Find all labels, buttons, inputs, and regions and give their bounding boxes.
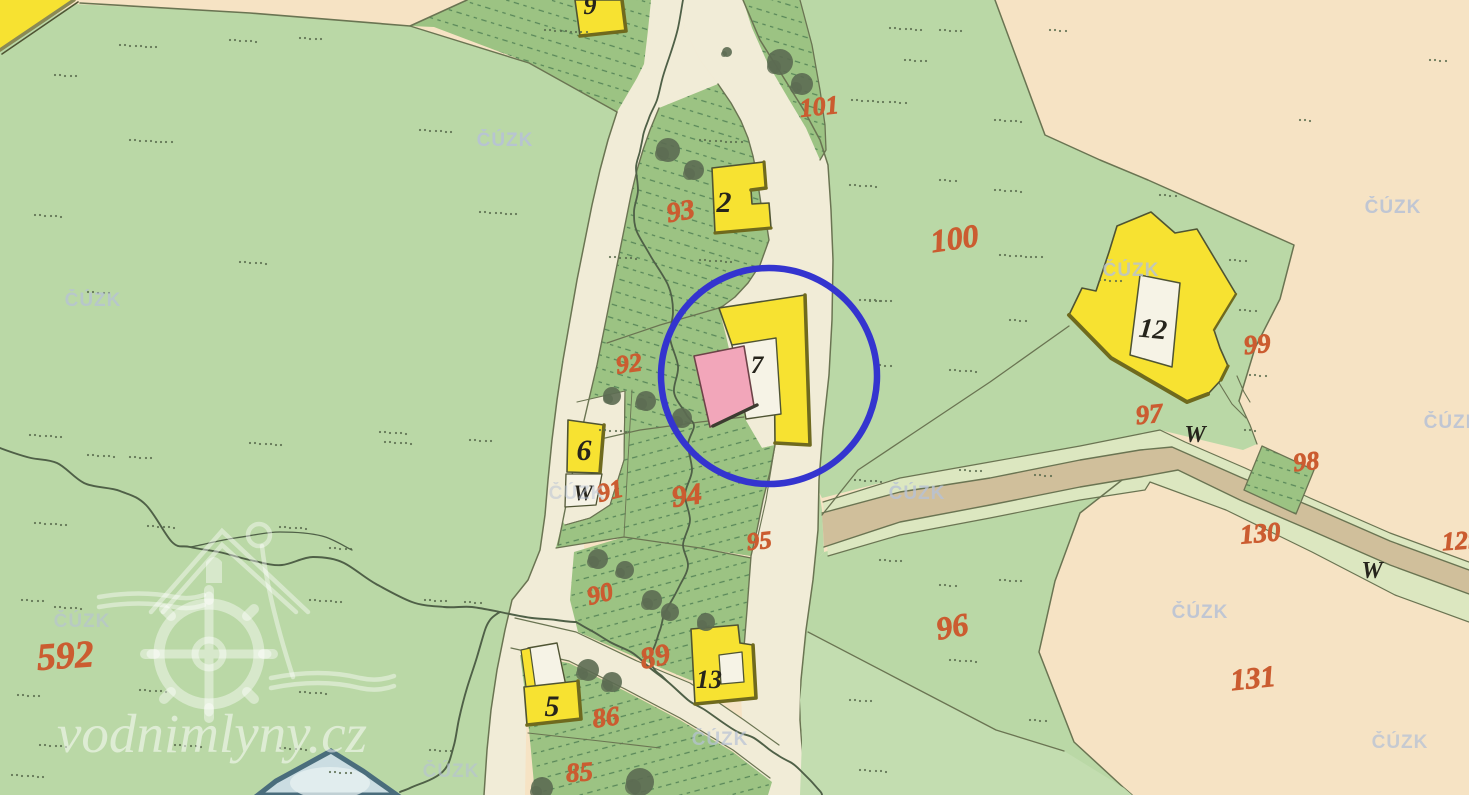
svg-text:W: W	[1361, 558, 1384, 584]
svg-text:95: 95	[745, 527, 773, 556]
svg-text:ČÚZK: ČÚZK	[1424, 411, 1469, 433]
svg-text:W: W	[1184, 422, 1207, 448]
svg-text:ČÚZK: ČÚZK	[1365, 196, 1422, 218]
svg-text:ČÚZK: ČÚZK	[65, 289, 122, 311]
svg-text:vodnimlyny.cz: vodnimlyny.cz	[57, 703, 367, 764]
svg-text:130: 130	[1239, 516, 1282, 549]
svg-text:ČÚZK: ČÚZK	[54, 610, 111, 632]
svg-text:592: 592	[35, 633, 95, 679]
svg-text:98: 98	[1292, 446, 1321, 478]
svg-text:ČÚZK: ČÚZK	[692, 728, 749, 750]
svg-text:99: 99	[1242, 328, 1272, 361]
svg-text:96: 96	[933, 606, 971, 647]
svg-text:92: 92	[614, 347, 644, 379]
svg-text:94: 94	[670, 477, 704, 514]
svg-text:12: 12	[1137, 313, 1168, 347]
svg-text:13: 13	[696, 665, 722, 694]
svg-text:129: 129	[1441, 525, 1469, 557]
svg-text:6: 6	[577, 434, 592, 467]
svg-text:ČÚZK: ČÚZK	[1103, 259, 1160, 281]
svg-text:ČÚZK: ČÚZK	[549, 482, 606, 504]
svg-text:ČÚZK: ČÚZK	[1372, 731, 1429, 753]
svg-text:2: 2	[716, 186, 732, 219]
svg-text:86: 86	[590, 700, 621, 734]
svg-text:101: 101	[798, 90, 840, 123]
svg-text:85: 85	[565, 756, 594, 788]
svg-text:9: 9	[584, 0, 597, 20]
svg-text:ČÚZK: ČÚZK	[889, 482, 946, 504]
svg-text:97: 97	[1134, 398, 1165, 431]
svg-text:ČÚZK: ČÚZK	[1172, 601, 1229, 623]
svg-text:7: 7	[751, 352, 765, 379]
svg-text:93: 93	[664, 194, 697, 229]
svg-text:ČÚZK: ČÚZK	[477, 129, 534, 151]
svg-text:100: 100	[928, 217, 981, 259]
svg-text:131: 131	[1229, 660, 1277, 698]
svg-text:ČÚZK: ČÚZK	[423, 760, 480, 782]
svg-text:5: 5	[545, 690, 560, 723]
